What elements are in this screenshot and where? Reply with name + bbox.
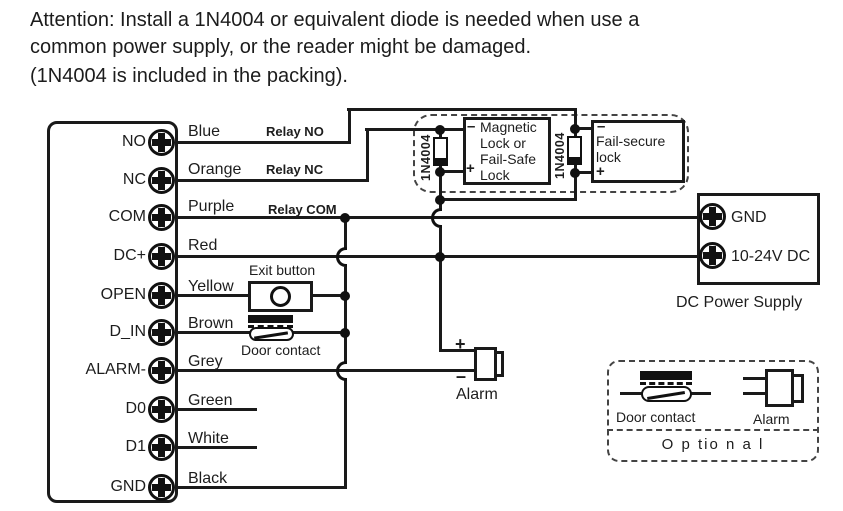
junction-bus-exit xyxy=(340,291,350,301)
exit-button-icon xyxy=(270,286,291,307)
optional-alarm-horn xyxy=(791,374,804,403)
diode-2-label: 1N4004 xyxy=(553,132,569,179)
screw-psu-dc xyxy=(699,242,726,269)
hop-over-purple xyxy=(431,208,442,228)
wire-blue-riser xyxy=(348,108,351,144)
wire-orange-to-lock xyxy=(365,128,463,131)
wire-label-purple: Purple xyxy=(188,197,234,217)
relay-no-label: Relay NO xyxy=(266,124,324,140)
optional-divider xyxy=(607,429,819,431)
wire-gnd-bus-3 xyxy=(344,379,347,489)
optional-contact-wire-left xyxy=(620,392,642,395)
alarm-plus-sign: + xyxy=(455,333,466,356)
psu-caption: DC Power Supply xyxy=(676,293,802,313)
terminal-label-d0: D0 xyxy=(28,399,146,419)
diode-1-label: 1N4004 xyxy=(419,134,435,181)
junction-diode1-top xyxy=(435,125,445,135)
wire-label-brown: Brown xyxy=(188,314,233,334)
wire-label-green: Green xyxy=(188,391,232,411)
wire-plus-to-alarm xyxy=(439,228,442,352)
alarm-symbol-horn xyxy=(494,351,504,377)
junction-red-wire xyxy=(435,252,445,262)
attention-line-1: Attention: Install a 1N4004 or equivalen… xyxy=(30,8,639,33)
magnetic-lock-line-2: Lock or xyxy=(480,135,526,151)
alarm-label: Alarm xyxy=(456,385,498,405)
magnetic-lock-plus: + xyxy=(466,160,475,179)
screw-terminal-d0 xyxy=(148,396,175,423)
junction-bus-contact xyxy=(340,328,350,338)
optional-alarm-label: Alarm xyxy=(753,411,790,429)
relay-com-label: Relay COM xyxy=(268,202,337,218)
screw-terminal-com xyxy=(148,204,175,231)
wire-label-yellow: Yellow xyxy=(188,277,234,297)
attention-line-3: (1N4004 is included in the packing). xyxy=(30,64,348,89)
terminal-label-din: D_IN xyxy=(28,322,146,342)
screw-terminal-nc xyxy=(148,167,175,194)
wire-gnd-bus-2 xyxy=(344,267,347,363)
junction-diode1-bottom xyxy=(435,167,445,177)
magnetic-lock-minus: – xyxy=(467,118,475,137)
screw-terminal-dcplus xyxy=(148,243,175,270)
wire-orange-riser xyxy=(366,128,369,182)
terminal-label-open: OPEN xyxy=(28,285,146,305)
wire-contact-to-bus xyxy=(290,331,347,334)
magnetic-lock-line-4: Lock xyxy=(480,167,510,183)
fail-secure-plus: + xyxy=(596,163,605,182)
wire-blue-top-run xyxy=(347,108,577,111)
hop-over-red xyxy=(336,247,347,267)
optional-contact-gap-dashes xyxy=(640,382,692,385)
optional-door-contact-label: Door contact xyxy=(616,409,695,427)
wire-label-white: White xyxy=(188,429,229,449)
optional-caption: O p tio n a l xyxy=(607,436,819,455)
terminal-label-nc: NC xyxy=(28,170,146,190)
relay-nc-label: Relay NC xyxy=(266,162,323,178)
optional-contact-wire-right xyxy=(689,392,711,395)
optional-contact-magnet-bar xyxy=(640,371,692,380)
screw-psu-gnd xyxy=(699,203,726,230)
terminal-label-alarm: ALARM- xyxy=(28,360,146,380)
wire-label-red: Red xyxy=(188,236,217,256)
terminal-label-no: NO xyxy=(28,132,146,152)
psu-gnd-label: GND xyxy=(731,208,767,228)
diode-1n4004-symbol-2 xyxy=(567,136,582,165)
terminal-label-d1: D1 xyxy=(28,437,146,457)
wire-label-blue: Blue xyxy=(188,122,220,142)
junction-diode2-bottom xyxy=(570,168,580,178)
optional-alarm-body xyxy=(765,369,794,407)
optional-alarm-wire-bottom xyxy=(743,392,767,395)
door-contact-label: Door contact xyxy=(241,342,320,360)
wire-label-orange: Orange xyxy=(188,160,241,180)
terminal-label-com: COM xyxy=(28,207,146,227)
junction-bus-purple xyxy=(340,213,350,223)
fail-secure-line-1: Fail-secure xyxy=(596,133,665,149)
magnetic-lock-line-1: Magnetic xyxy=(480,119,537,135)
exit-button-label: Exit button xyxy=(249,262,315,280)
magnetic-lock-line-3: Fail-Safe xyxy=(480,151,536,167)
screw-terminal-din xyxy=(148,319,175,346)
hop-over-grey xyxy=(336,361,347,381)
optional-alarm-wire-top xyxy=(743,377,767,380)
diode-1n4004-symbol-1 xyxy=(433,137,448,166)
psu-dc-label: 10-24V DC xyxy=(731,247,810,267)
screw-terminal-open xyxy=(148,282,175,309)
screw-terminal-gnd xyxy=(148,474,175,501)
wire-lock-plus-link xyxy=(439,198,577,201)
screw-terminal-no xyxy=(148,129,175,156)
wire-label-black: Black xyxy=(188,469,227,489)
screw-terminal-d1 xyxy=(148,434,175,461)
wiring-diagram: Attention: Install a 1N4004 or equivalen… xyxy=(0,0,843,511)
wire-label-grey: Grey xyxy=(188,352,223,372)
terminal-label-dcplus: DC+ xyxy=(28,246,146,266)
junction-diode2-top xyxy=(570,124,580,134)
terminal-label-gnd: GND xyxy=(28,477,146,497)
attention-line-2: common power supply, or the reader might… xyxy=(30,35,531,60)
door-contact-magnet-bar xyxy=(248,315,293,323)
junction-plus-link xyxy=(435,195,445,205)
screw-terminal-alarm xyxy=(148,357,175,384)
